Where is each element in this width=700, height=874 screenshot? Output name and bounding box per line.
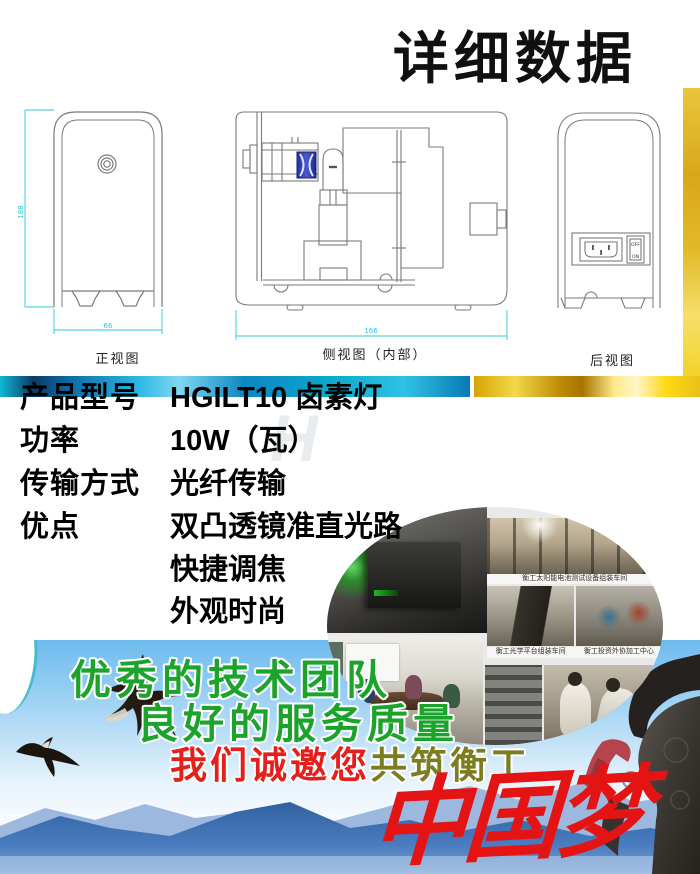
photo-warehouse-shelf xyxy=(485,665,542,745)
gold-vertical-band xyxy=(683,88,700,396)
ding-horn xyxy=(602,798,630,856)
spec-value: 双凸透镜准直光路 xyxy=(170,503,402,545)
page-title: 详细数据 xyxy=(393,14,693,84)
spec-label: 功率 xyxy=(20,417,80,459)
spec-value: 外观时尚 xyxy=(170,588,286,630)
product-detail-page: 详细数据 H 188 66 正视图 xyxy=(0,0,700,874)
meeting-person xyxy=(405,675,422,699)
banner-corner-curve xyxy=(0,640,42,717)
meeting-wall xyxy=(327,642,343,686)
switch-on-label: ON xyxy=(632,254,639,260)
side-dimension-lines xyxy=(236,310,507,340)
side-view-drawing: 166 xyxy=(230,100,520,360)
engineer-head xyxy=(568,672,582,686)
spec-label: 产品型号 xyxy=(20,374,140,416)
front-dim-height-label: 188 xyxy=(18,205,25,218)
side-dim-width-label: 166 xyxy=(364,327,378,335)
meeting-whiteboard xyxy=(346,644,399,681)
spec-value: 快捷调焦 xyxy=(170,546,286,588)
switch-off-label: OFF xyxy=(631,242,640,248)
eagle-small-icon xyxy=(12,726,84,778)
engineer-figure xyxy=(560,683,591,736)
photo-meeting-room xyxy=(327,636,483,745)
spec-value: 光纤传输 xyxy=(170,460,286,502)
spec-row-power: 功率 10W（瓦） xyxy=(0,417,540,457)
front-view-label: 正视图 xyxy=(18,348,218,367)
engineer-figure xyxy=(594,684,639,738)
side-view-label: 侧视图（内部） xyxy=(230,344,520,363)
spec-label: 传输方式 xyxy=(20,460,140,502)
spec-row-advantage-2: 快捷调焦 xyxy=(0,546,540,586)
spec-value: 10W（瓦） xyxy=(170,417,317,459)
caption-bar: 衡工光学平台组装车间 衡工投资外协加工中心 xyxy=(487,647,663,658)
eagle-large-icon xyxy=(85,652,185,747)
lens-element xyxy=(297,152,316,178)
spec-row-model: 产品型号 HGILT10 卤素灯 xyxy=(0,374,540,414)
front-dimension-lines xyxy=(25,110,162,334)
power-switch-labels: OFF ON xyxy=(631,242,640,260)
spec-row-advantage-1: 优点 双凸透镜准直光路 xyxy=(0,503,540,543)
caption-outsource-center: 衡工投资外协加工中心 xyxy=(575,647,663,658)
caption-optical-platform: 衡工光学平台组装车间 xyxy=(487,647,575,658)
photo-outsource-center xyxy=(576,586,663,647)
rear-view-drawing: OFF ON xyxy=(545,100,680,360)
front-view-drawing: 188 66 xyxy=(18,100,218,360)
spec-label: 优点 xyxy=(20,503,80,545)
meeting-person xyxy=(358,679,375,703)
front-dim-width-label: 66 xyxy=(104,322,113,330)
photo-engineers xyxy=(544,665,663,745)
spec-value: HGILT10 卤素灯 xyxy=(170,374,382,416)
meeting-person xyxy=(443,684,460,708)
rear-view-label: 后视图 xyxy=(545,350,680,369)
spec-row-transmission: 传输方式 光纤传输 xyxy=(0,460,540,500)
spec-row-advantage-3: 外观时尚 xyxy=(0,588,540,628)
